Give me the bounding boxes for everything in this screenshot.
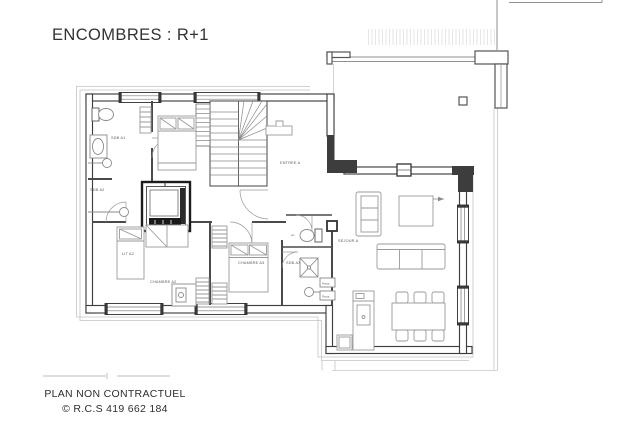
footer-rcs-number: © R.C.S 419 662 184 — [0, 403, 230, 415]
wardrobe-chambre-a2 — [146, 225, 188, 247]
label-sdb-a3: SDB A3 — [286, 261, 301, 265]
footer: PLAN NON CONTRACTUEL © R.C.S 419 662 184 — [0, 388, 230, 415]
roof-marker — [459, 97, 467, 105]
label-entree-a: ENTREE A — [280, 161, 301, 165]
label-sdb-a2: SDB A2 — [90, 188, 105, 192]
elevator — [142, 182, 190, 231]
label-chambre-a2: CHAMBRE A2 — [150, 280, 176, 284]
radiator-symbol-2 — [88, 208, 129, 217]
staircase — [196, 101, 267, 186]
wardrobe-hatched-2 — [212, 283, 227, 304]
pergola — [327, 0, 602, 108]
wardrobe-hatched-1 — [196, 278, 209, 304]
window-bottom-1 — [105, 304, 163, 315]
roof-hatch — [368, 29, 497, 45]
ground-lines — [43, 373, 170, 379]
window-top-1 — [119, 93, 161, 103]
label-sdb-a1: SDB A1 — [111, 136, 126, 140]
label-sejour-a: SEJOUR A — [338, 239, 359, 243]
kitchen-tall-unit — [353, 291, 374, 350]
toilet-wc — [300, 229, 322, 242]
sink-sdb-a1 — [90, 135, 107, 158]
sink-sdb-a3 — [305, 288, 323, 297]
floor-plan-page: ENCOMBRES : R+1 — [0, 0, 640, 443]
footer-disclaimer: PLAN NON CONTRACTUEL — [0, 388, 230, 400]
armchair-sofa — [356, 192, 381, 236]
window-bottom-2 — [195, 304, 247, 315]
toilet-sdb-a1 — [92, 108, 114, 121]
upper-flight-ladder — [196, 104, 210, 146]
entry-shelf — [266, 121, 292, 135]
coffee-table — [399, 196, 433, 226]
bed-chambre-a3 — [229, 243, 268, 292]
kitchen-small-unit — [337, 335, 352, 350]
label-wc: wc — [291, 233, 295, 237]
shelf-unit — [140, 107, 151, 133]
living-furniture — [320, 192, 445, 350]
dining-table — [392, 303, 445, 330]
label-chambre-a3: CHAMBRE A3 — [238, 261, 264, 265]
label-rangt-1: Rangt — [322, 282, 330, 286]
bed-chambre-a1 — [158, 116, 196, 170]
long-sofa — [377, 244, 445, 269]
floor-plan-drawing: SDB A1 SDB A2 ENTREE A LIT A2 CHAMBRE A2… — [0, 0, 640, 443]
shower-sdb-a3 — [300, 258, 318, 277]
window-right-1 — [458, 205, 469, 243]
vanity-cabinet — [172, 284, 196, 306]
label-lit-a2: LIT A2 — [122, 252, 134, 256]
window-right-2 — [458, 286, 469, 325]
wardrobe-hatched-3 — [212, 226, 227, 248]
structural-post — [327, 221, 337, 231]
label-rangt-2: Rangt — [322, 295, 330, 299]
